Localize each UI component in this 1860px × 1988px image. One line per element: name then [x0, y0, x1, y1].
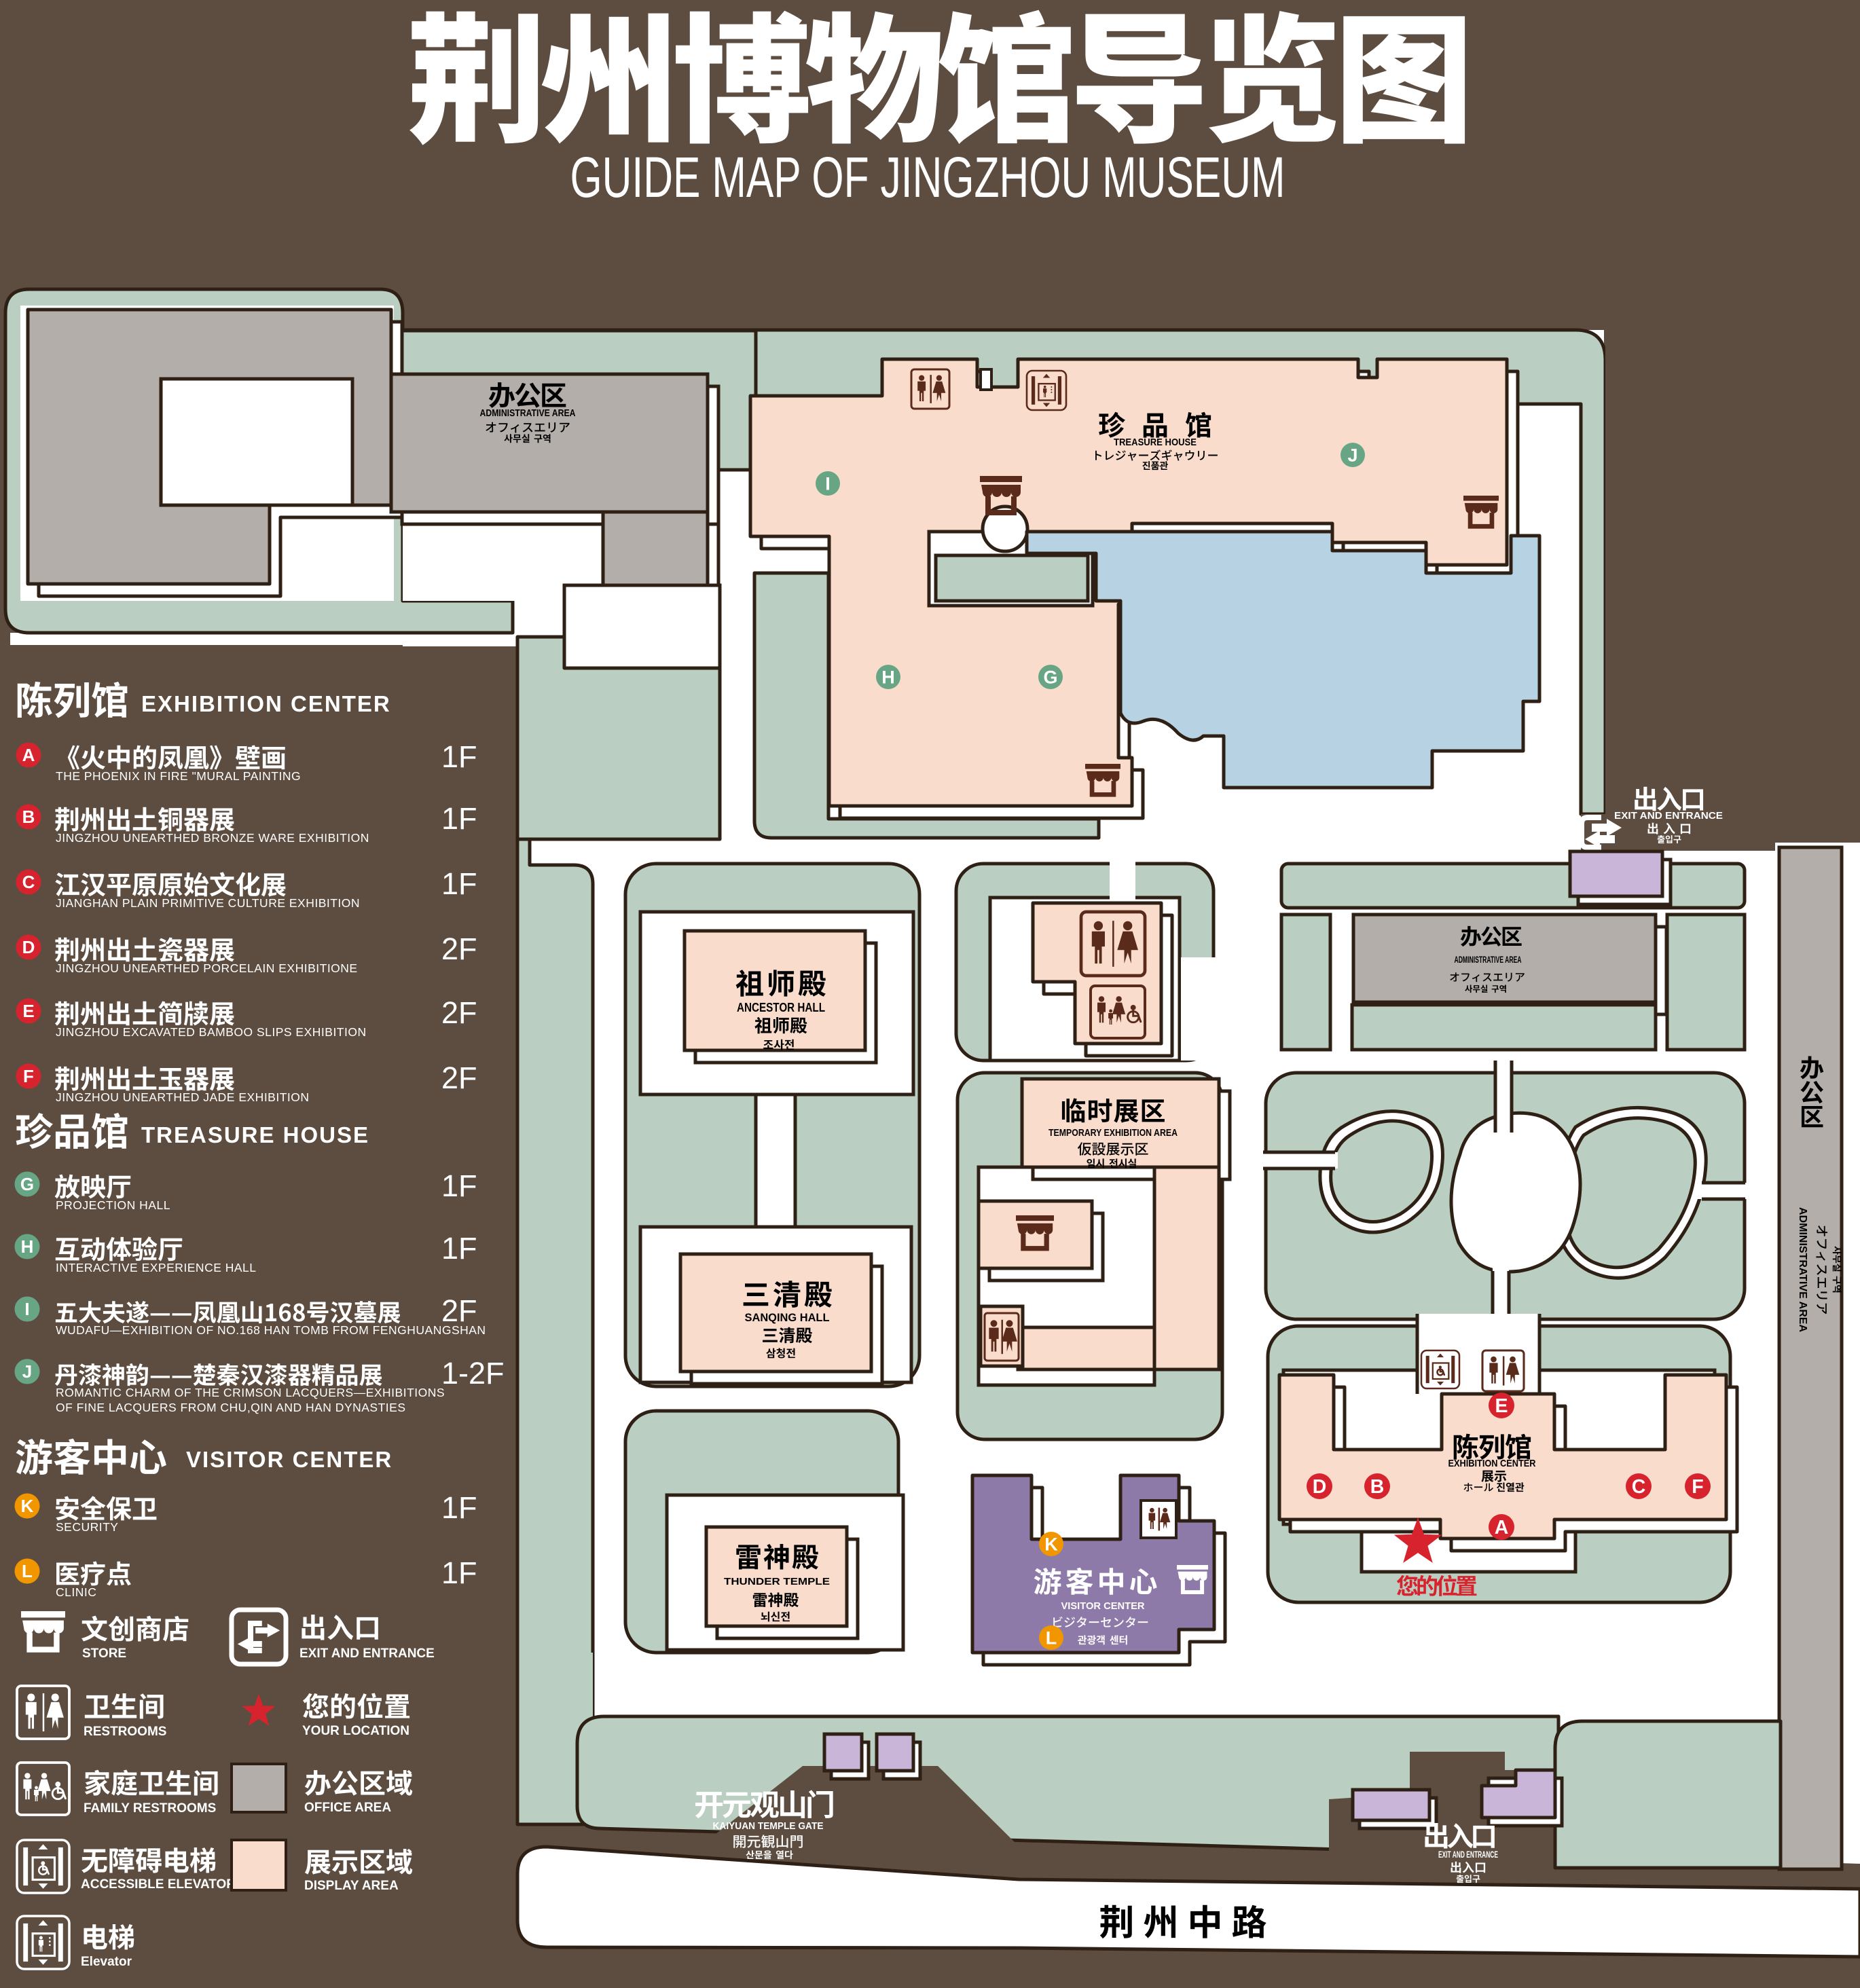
svg-text:ANCESTOR HALL: ANCESTOR HALL [737, 1001, 825, 1014]
svg-text:TREASURE HOUSE: TREASURE HOUSE [141, 1122, 369, 1147]
svg-text:2F: 2F [441, 932, 477, 966]
svg-text:CLINIC: CLINIC [56, 1585, 96, 1599]
svg-text:G: G [1043, 667, 1057, 687]
svg-text:WUDAFU—EXHIBITION OF NO.168 HA: WUDAFU—EXHIBITION OF NO.168 HAN TOMB FRO… [56, 1323, 486, 1337]
svg-text:GUIDE MAP OF JINGZHOU MUSEUM: GUIDE MAP OF JINGZHOU MUSEUM [570, 145, 1285, 209]
svg-text:D: D [1313, 1476, 1327, 1498]
svg-text:EXHIBITION CENTER: EXHIBITION CENTER [1448, 1458, 1536, 1469]
svg-text:EXIT AND ENTRANCE: EXIT AND ENTRANCE [1614, 811, 1723, 822]
svg-text:1F: 1F [441, 866, 477, 901]
svg-text:FAMILY RESTROOMS: FAMILY RESTROOMS [84, 1801, 216, 1816]
svg-text:K: K [1044, 1534, 1058, 1554]
svg-text:1F: 1F [441, 1231, 477, 1266]
svg-text:B: B [1370, 1476, 1385, 1498]
svg-text:J: J [22, 1361, 32, 1382]
svg-text:YOUR LOCATION: YOUR LOCATION [302, 1724, 409, 1738]
svg-text:THE PHOENIX IN FIRE "MURAL PAI: THE PHOENIX IN FIRE "MURAL PAINTING [56, 769, 301, 783]
svg-text:EXIT AND ENTRANCE: EXIT AND ENTRANCE [1438, 1849, 1498, 1860]
svg-text:EXHIBITION CENTER: EXHIBITION CENTER [141, 691, 391, 716]
svg-text:1F: 1F [441, 801, 477, 836]
svg-text:INTERACTIVE EXPERIENCE HALL: INTERACTIVE EXPERIENCE HALL [56, 1261, 257, 1274]
svg-text:ADMINISTRATIVE AREA: ADMINISTRATIVE AREA [1797, 1207, 1808, 1332]
svg-text:PROJECTION HALL: PROJECTION HALL [56, 1198, 170, 1212]
svg-text:C: C [1632, 1476, 1646, 1498]
svg-text:OF FINE LACQUERS FROM CHU,QIN: OF FINE LACQUERS FROM CHU,QIN AND HAN DY… [56, 1401, 406, 1414]
svg-text:ROMANTIC CHARM OF THE CRIMSON: ROMANTIC CHARM OF THE CRIMSON LACQUERS—E… [56, 1386, 445, 1399]
svg-text:A: A [22, 745, 35, 765]
svg-text:J: J [1347, 445, 1357, 465]
svg-text:ADMINISTRATIVE AREA: ADMINISTRATIVE AREA [480, 407, 576, 419]
svg-text:STORE: STORE [82, 1646, 126, 1661]
svg-text:1F: 1F [441, 1556, 477, 1590]
svg-text:H: H [21, 1236, 34, 1257]
svg-text:L: L [1046, 1627, 1057, 1648]
svg-text:SECURITY: SECURITY [56, 1520, 118, 1534]
svg-text:RESTROOMS: RESTROOMS [84, 1725, 166, 1739]
svg-text:JINGZHOU UNEARTHED BRONZE WARE: JINGZHOU UNEARTHED BRONZE WARE EXHIBITIO… [56, 831, 369, 845]
svg-text:A: A [1495, 1517, 1509, 1539]
svg-text:KAIYUAN TEMPLE GATE: KAIYUAN TEMPLE GATE [713, 1820, 824, 1832]
svg-text:1-2F: 1-2F [441, 1356, 505, 1391]
svg-text:F: F [1692, 1476, 1703, 1498]
svg-text:K: K [21, 1496, 34, 1516]
svg-text:1F: 1F [441, 1490, 477, 1525]
svg-text:JINGZHOU EXCAVATED BAMBOO SLIP: JINGZHOU EXCAVATED BAMBOO SLIPS EXHIBITI… [56, 1025, 367, 1039]
svg-text:G: G [20, 1174, 34, 1194]
svg-text:TEMPORARY EXHIBITION AREA: TEMPORARY EXHIBITION AREA [1048, 1127, 1178, 1139]
svg-text:1F: 1F [441, 739, 477, 774]
svg-text:E: E [1495, 1395, 1508, 1417]
svg-text:1F: 1F [441, 1168, 477, 1203]
svg-text:VISITOR CENTER: VISITOR CENTER [186, 1447, 393, 1472]
svg-text:SANQING HALL: SANQING HALL [745, 1311, 830, 1324]
svg-text:C: C [22, 872, 35, 892]
svg-text:B: B [22, 807, 35, 827]
svg-text:EXIT AND ENTRANCE: EXIT AND ENTRANCE [299, 1646, 435, 1661]
svg-text:2F: 2F [441, 1061, 477, 1095]
svg-text:OFFICE AREA: OFFICE AREA [304, 1801, 391, 1815]
svg-text:2F: 2F [441, 995, 477, 1030]
svg-text:JINGZHOU UNEARTHED PORCELAIN E: JINGZHOU UNEARTHED PORCELAIN EXHIBITIONE [56, 961, 358, 975]
svg-text:F: F [23, 1066, 34, 1086]
svg-text:L: L [22, 1561, 33, 1581]
svg-text:JIANGHAN PLAIN PRIMITIVE CULTU: JIANGHAN PLAIN PRIMITIVE CULTURE EXHIBIT… [56, 896, 360, 910]
svg-text:DISPLAY AREA: DISPLAY AREA [304, 1879, 399, 1893]
svg-text:ACCESSIBLE ELEVATOR: ACCESSIBLE ELEVATOR [81, 1877, 236, 1892]
svg-text:I: I [24, 1299, 29, 1319]
svg-text:JINGZHOU UNEARTHED JADE EXHIBI: JINGZHOU UNEARTHED JADE EXHIBITION [56, 1090, 310, 1104]
svg-text:VISITOR CENTER: VISITOR CENTER [1061, 1600, 1145, 1612]
svg-text:H: H [881, 667, 895, 687]
svg-text:I: I [825, 473, 831, 494]
svg-text:2F: 2F [441, 1293, 477, 1328]
svg-text:TREASURE HOUSE: TREASURE HOUSE [1114, 437, 1197, 448]
svg-text:THUNDER TEMPLE: THUNDER TEMPLE [724, 1576, 830, 1587]
svg-text:D: D [22, 937, 35, 957]
svg-text:ADMINISTRATIVE AREA: ADMINISTRATIVE AREA [1455, 955, 1522, 965]
svg-text:E: E [22, 1001, 34, 1021]
svg-text:Elevator: Elevator [81, 1955, 132, 1969]
